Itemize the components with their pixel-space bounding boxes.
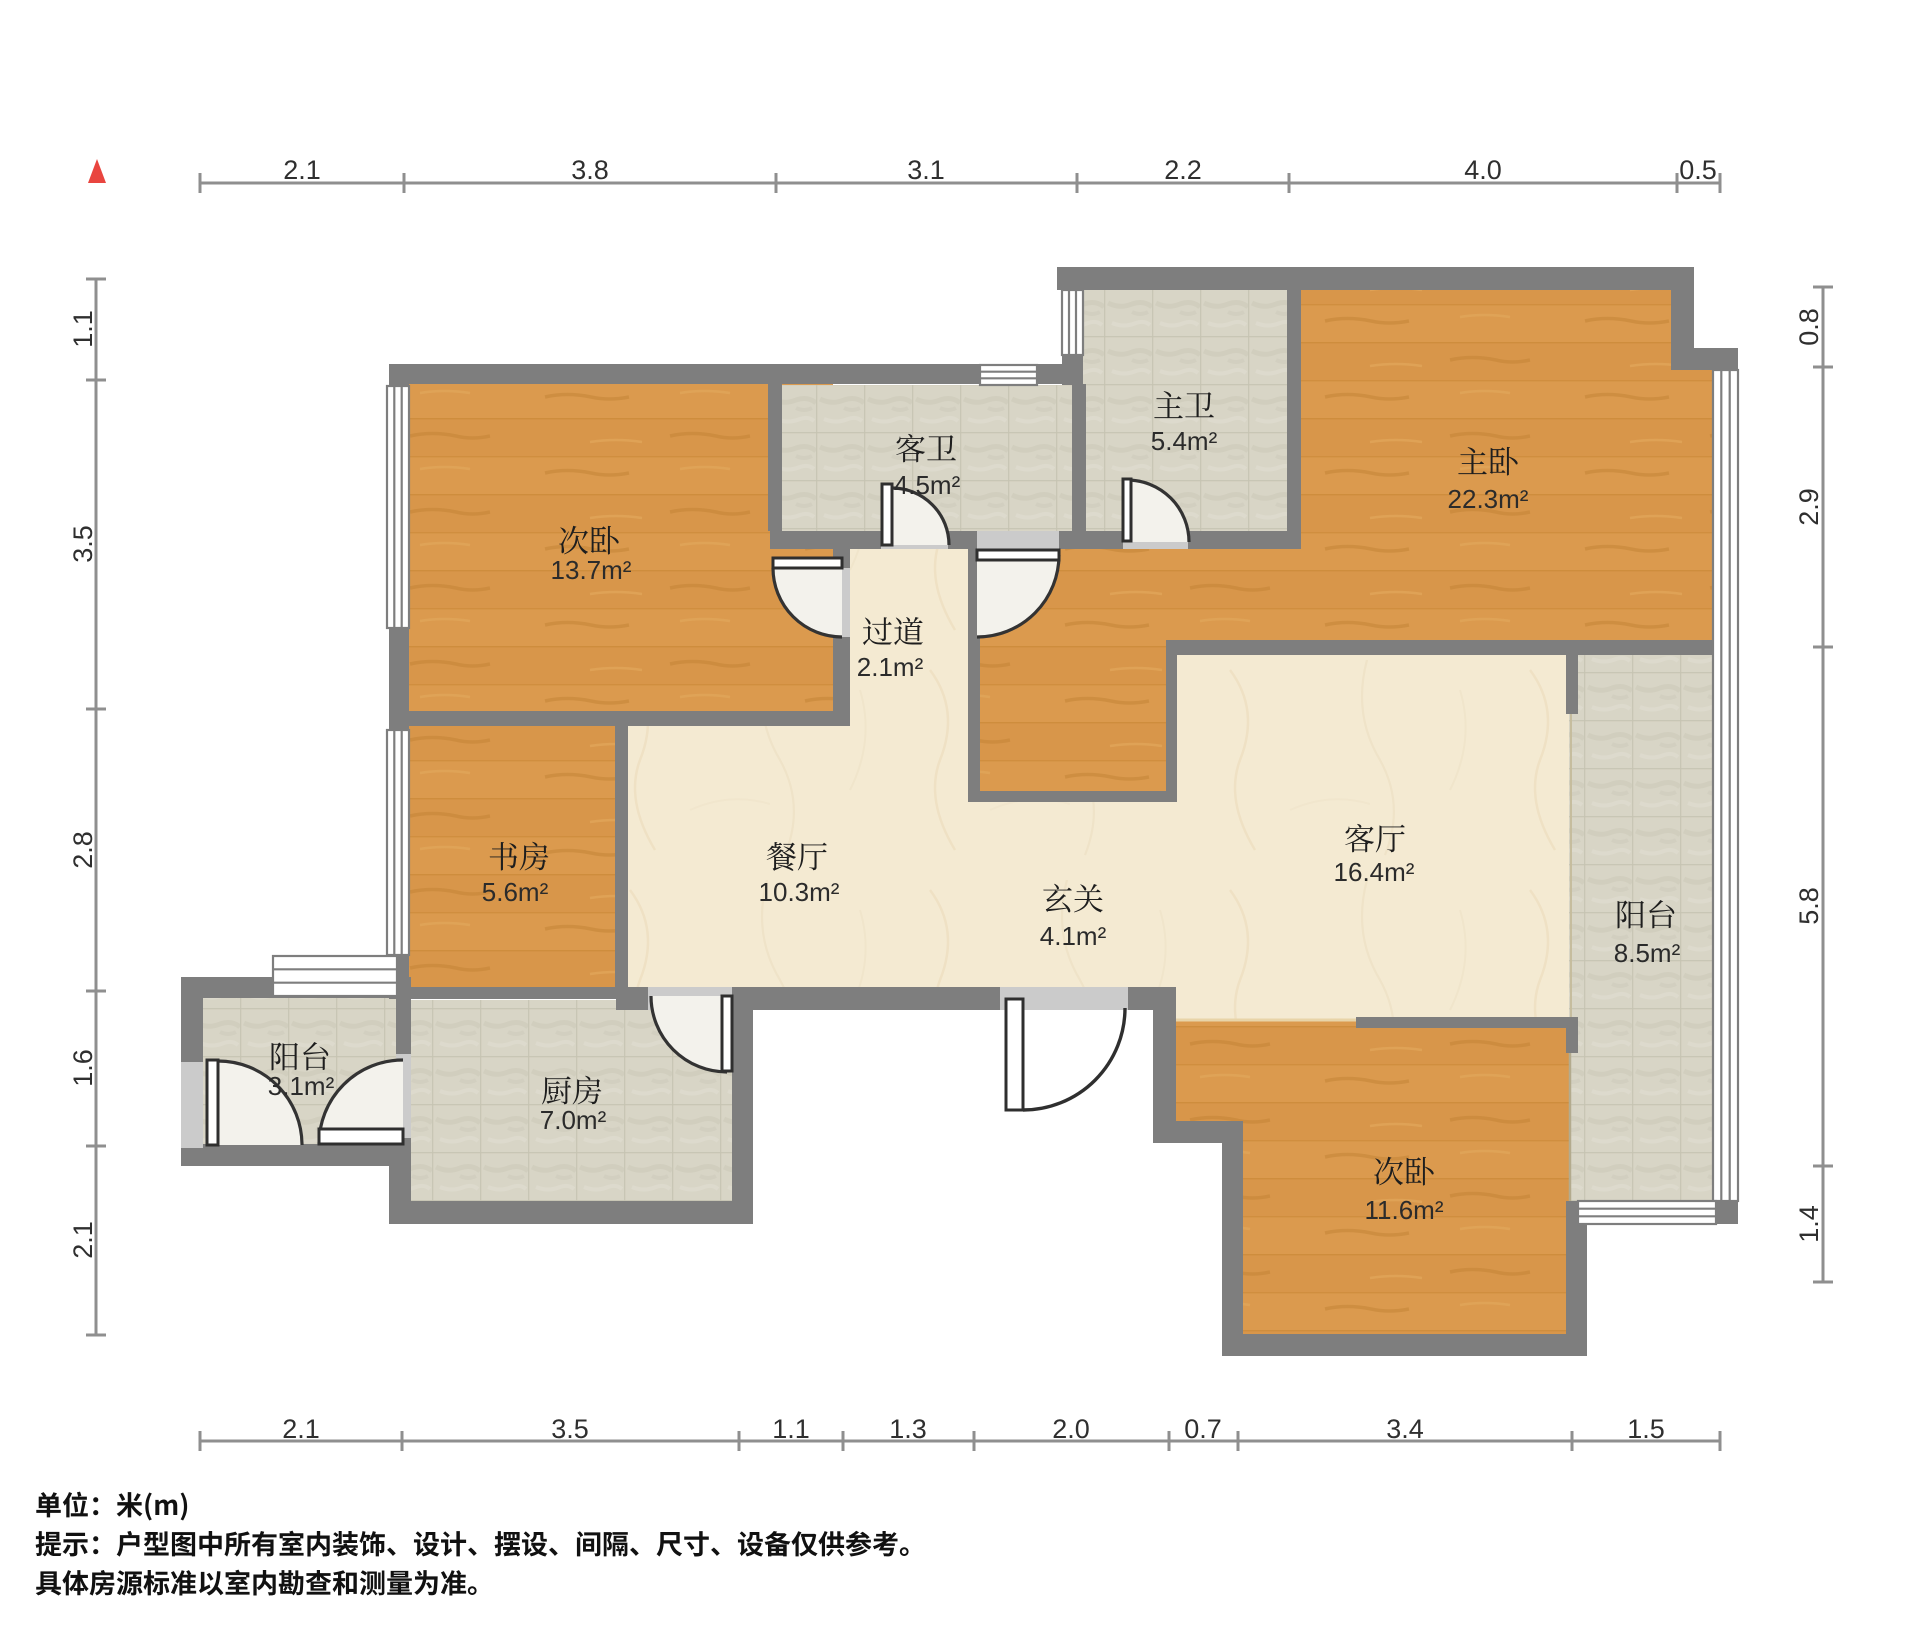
svg-text:3.5: 3.5 — [68, 525, 98, 563]
svg-text:0.8: 0.8 — [1794, 308, 1824, 346]
svg-text:3.1m²: 3.1m² — [268, 1071, 335, 1101]
svg-text:2.1: 2.1 — [68, 1221, 98, 1259]
svg-text:1.4: 1.4 — [1794, 1205, 1824, 1243]
svg-text:2.8: 2.8 — [68, 831, 98, 869]
svg-text:0.7: 0.7 — [1184, 1414, 1222, 1444]
svg-text:3.4: 3.4 — [1386, 1414, 1424, 1444]
svg-text:10.3m²: 10.3m² — [759, 877, 840, 907]
svg-text:1.6: 1.6 — [68, 1049, 98, 1087]
svg-text:2.0: 2.0 — [1052, 1414, 1090, 1444]
svg-text:0.5: 0.5 — [1679, 155, 1717, 185]
svg-text:1.3: 1.3 — [889, 1414, 927, 1444]
svg-text:3.1: 3.1 — [907, 155, 945, 185]
svg-text:5.4m²: 5.4m² — [1151, 426, 1218, 456]
svg-text:4.1m²: 4.1m² — [1040, 921, 1107, 951]
svg-text:2.2: 2.2 — [1164, 155, 1202, 185]
svg-text:1.5: 1.5 — [1627, 1414, 1665, 1444]
svg-text:3.5: 3.5 — [551, 1414, 589, 1444]
svg-text:5.6m²: 5.6m² — [482, 877, 549, 907]
svg-text:7.0m²: 7.0m² — [540, 1105, 607, 1135]
svg-text:2.1: 2.1 — [282, 1414, 320, 1444]
svg-text:8.5m²: 8.5m² — [1614, 938, 1681, 968]
svg-text:13.7m²: 13.7m² — [551, 555, 632, 585]
svg-text:5.8: 5.8 — [1794, 887, 1824, 925]
svg-text:1.1: 1.1 — [68, 310, 98, 348]
svg-text:4.5m²: 4.5m² — [894, 470, 961, 500]
svg-text:16.4m²: 16.4m² — [1334, 857, 1415, 887]
svg-text:2.1m²: 2.1m² — [857, 652, 924, 682]
svg-text:2.1: 2.1 — [283, 155, 321, 185]
svg-text:4.0: 4.0 — [1464, 155, 1502, 185]
svg-text:2.9: 2.9 — [1794, 488, 1824, 526]
svg-text:3.8: 3.8 — [571, 155, 609, 185]
svg-text:22.3m²: 22.3m² — [1448, 484, 1529, 514]
svg-text:11.6m²: 11.6m² — [1365, 1195, 1444, 1225]
svg-text:1.1: 1.1 — [772, 1414, 810, 1444]
